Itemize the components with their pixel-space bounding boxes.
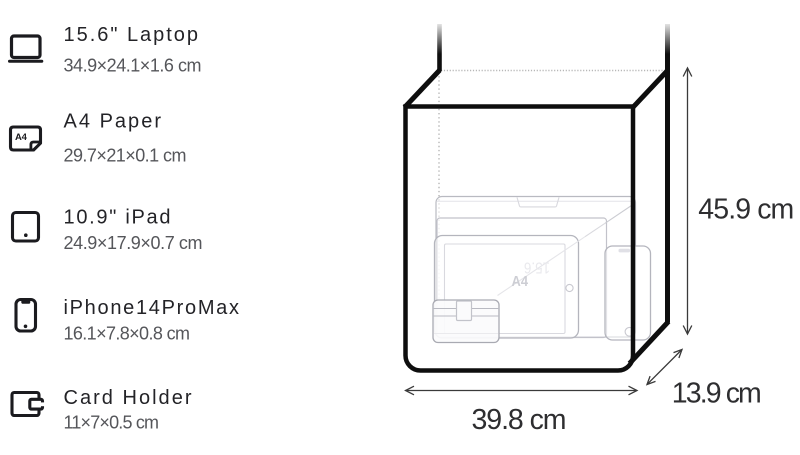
svg-text:15.6: 15.6 bbox=[524, 259, 550, 276]
svg-text:15.6" Laptop: 15.6" Laptop bbox=[64, 24, 199, 46]
svg-text:iPhone14ProMax: iPhone14ProMax bbox=[64, 297, 240, 319]
svg-text:11×7×0.5 cm: 11×7×0.5 cm bbox=[64, 412, 160, 432]
svg-text:34.9×24.1×1.6 cm: 34.9×24.1×1.6 cm bbox=[64, 56, 202, 76]
svg-text:24.9×17.9×0.7 cm: 24.9×17.9×0.7 cm bbox=[64, 233, 203, 253]
svg-text:13.9 cm: 13.9 cm bbox=[672, 377, 762, 409]
svg-text:A4 Paper: A4 Paper bbox=[64, 111, 162, 133]
svg-text:45.9 cm: 45.9 cm bbox=[698, 194, 794, 226]
svg-text:16.1×7.8×0.8 cm: 16.1×7.8×0.8 cm bbox=[64, 324, 191, 344]
svg-text:29.7×21×0.1 cm: 29.7×21×0.1 cm bbox=[64, 145, 187, 165]
svg-text:39.8 cm: 39.8 cm bbox=[472, 404, 567, 436]
svg-text:A4: A4 bbox=[15, 132, 28, 143]
svg-text:Card Holder: Card Holder bbox=[64, 387, 192, 409]
